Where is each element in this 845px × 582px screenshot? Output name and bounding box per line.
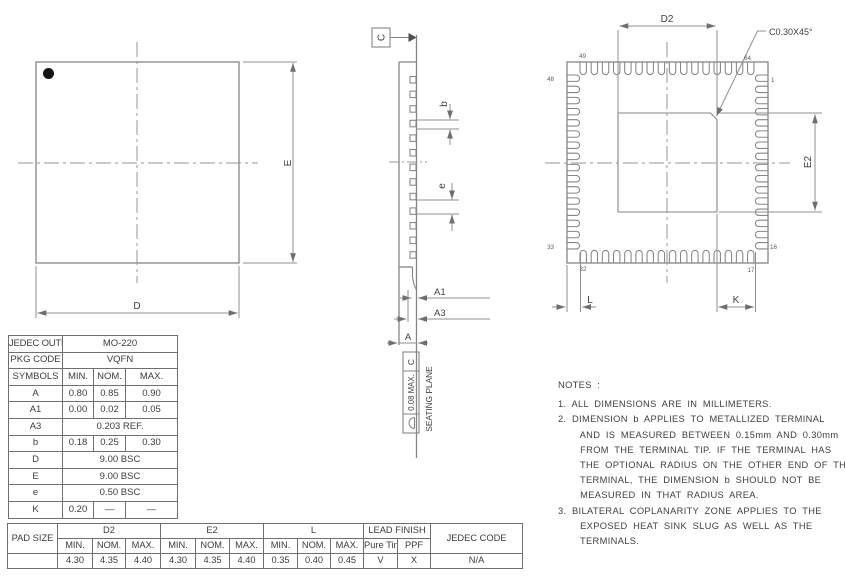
flatness-symbol-icon [409, 418, 414, 429]
top-view: E D [18, 42, 297, 318]
notes-line: 3. BILATERAL COPLANARITY ZONE APPLIES TO… [558, 504, 845, 519]
spec-span-value: 0.50 BSC [63, 485, 178, 502]
pad-sub-header: MIN. [161, 538, 196, 553]
pad-value: V [364, 553, 398, 568]
ppf-header: PPF [398, 538, 431, 553]
pin-49-label: 49 [579, 53, 586, 60]
spec-label-pkg-code: PKG CODE [9, 352, 63, 369]
pad-value: 0.35 [264, 553, 298, 568]
table-row: A3 0.203 REF. [9, 418, 178, 435]
bottom-view: D2 E2 C0.30X45° L K 49 64 48 1 33 16 32 … [545, 14, 822, 312]
dim-label-a: A [405, 332, 412, 343]
spec-min: 0.80 [63, 385, 94, 402]
dim-label-a3: A3 [434, 308, 446, 319]
flatness-datum-label: C [406, 359, 416, 365]
dim-label-d: D [133, 301, 140, 312]
spec-table: JEDEC OUTLINE MO-220 PKG CODE VQFN SYMBO… [8, 335, 178, 519]
spec-value-pkg-code: VQFN [63, 352, 178, 369]
spec-symbol: e [9, 485, 63, 502]
notes-line: FROM THE TERMINAL TIP. IF THE TERMINAL H… [558, 443, 845, 458]
spec-max: 0.90 [126, 385, 178, 402]
spec-value-jedec-outline: MO-220 [63, 336, 178, 353]
spec-symbol: K [9, 501, 63, 518]
table-row: PKG CODE VQFN [9, 352, 178, 369]
notes-title: NOTES : [558, 378, 845, 393]
pad-value: 4.30 [58, 553, 93, 568]
side-view-terminals [410, 77, 416, 259]
pad-sub-header: MIN. [58, 538, 93, 553]
pad-sub-header: NOM. [93, 538, 126, 553]
notes-line: MEASURED IN THAT RADIUS AREA. [558, 488, 845, 503]
pad-sub-header: MAX. [126, 538, 161, 553]
notes-line: 1. ALL DIMENSIONS ARE IN MILLIMETERS. [558, 397, 845, 412]
pad-value: 4.30 [161, 553, 196, 568]
dimension-lines-top-view [36, 62, 297, 318]
table-row: A1 0.00 0.02 0.05 [9, 402, 178, 419]
spec-header-max: MAX. [126, 369, 178, 386]
spec-span-value: 0.203 REF. [63, 418, 178, 435]
pad-sub-header: MAX. [230, 538, 264, 553]
pin-16-label: 16 [770, 244, 777, 251]
pin1-marker-dot [43, 68, 54, 79]
datum-arrowhead [409, 33, 417, 42]
spec-symbol: A3 [9, 418, 63, 435]
datum-c-label: C [377, 34, 388, 41]
dim-label-a1: A1 [434, 287, 446, 298]
spec-symbol: A [9, 385, 63, 402]
pin-1-label: 1 [771, 77, 775, 84]
chamfer-callout-label: C0.30X45° [769, 27, 813, 37]
spec-max: — [126, 501, 178, 518]
notes-line: EXPOSED HEAT SINK SLUG AS WELL AS THE [558, 519, 845, 534]
dim-label-e: E [283, 159, 294, 166]
table-row: A 0.80 0.85 0.90 [9, 385, 178, 402]
table-row: D 9.00 BSC [9, 452, 178, 469]
pad-e2-header: E2 [161, 524, 264, 539]
spec-nom: 0.85 [94, 385, 126, 402]
pad-value: 4.40 [126, 553, 161, 568]
table-row: 4.30 4.35 4.40 4.30 4.35 4.40 0.35 0.40 … [8, 553, 523, 568]
jedec-code-header: JEDEC CODE [431, 524, 523, 554]
spec-max: 0.30 [126, 435, 178, 452]
pad-sub-header: NOM. [298, 538, 331, 553]
pin-48-label: 48 [547, 76, 554, 83]
pad-value: 0.40 [298, 553, 331, 568]
spec-header-nom: NOM. [94, 369, 126, 386]
spec-label-jedec-outline: JEDEC OUTLINE [9, 336, 63, 353]
seating-plane-label: SEATING PLANE [424, 366, 434, 432]
table-row: E 9.00 BSC [9, 468, 178, 485]
pin-33-label: 33 [547, 244, 554, 251]
pad-sub-header: MIN. [264, 538, 298, 553]
spec-span-value: 9.00 BSC [63, 468, 178, 485]
table-row: JEDEC OUTLINE MO-220 [9, 336, 178, 353]
spec-span-value: 9.00 BSC [63, 452, 178, 469]
table-row: K 0.20 — — [9, 501, 178, 518]
spec-min: 0.18 [63, 435, 94, 452]
dim-label-d2: D2 [661, 14, 674, 25]
centerlines [18, 42, 258, 283]
spec-symbol: b [9, 435, 63, 452]
pad-sub-header: MAX. [331, 538, 364, 553]
dim-label-l: L [587, 295, 593, 306]
spec-min: 0.00 [63, 402, 94, 419]
notes-line: THE OPTIONAL RADIUS ON THE OTHER END OF … [558, 458, 845, 473]
spec-header-symbols: SYMBOLS [9, 369, 63, 386]
spec-symbol: A1 [9, 402, 63, 419]
lead-finish-header: LEAD FINISH [364, 524, 431, 539]
notes-line: AND IS MEASURED BETWEEN 0.15mm AND 0.30m… [558, 428, 845, 443]
notes-line: 2. DIMENSION b APPLIES TO METALLIZED TER… [558, 412, 845, 427]
table-row: SYMBOLS MIN. NOM. MAX. [9, 369, 178, 386]
pad-value: 4.35 [196, 553, 230, 568]
pad-l-header: L [264, 524, 364, 539]
spec-nom: — [94, 501, 126, 518]
notes-line: TERMINALS. [558, 534, 845, 549]
dim-label-k: K [733, 295, 740, 306]
flatness-tolerance-label: 0.08 MAX. [407, 374, 416, 410]
pad-value: X [398, 553, 431, 568]
pad-size-table: PAD SIZE D2 E2 L LEAD FINISH JEDEC CODE … [7, 523, 523, 569]
pad-value: 4.35 [93, 553, 126, 568]
dim-label-e2: E2 [803, 155, 814, 168]
table-row: PAD SIZE D2 E2 L LEAD FINISH JEDEC CODE [8, 524, 523, 539]
dim-label-b: b [439, 101, 450, 107]
spec-min: 0.20 [63, 501, 94, 518]
pad-value [8, 553, 58, 568]
spec-nom: 0.02 [94, 402, 126, 419]
spec-max: 0.05 [126, 402, 178, 419]
notes-section: NOTES : 1. ALL DIMENSIONS ARE IN MILLIME… [558, 378, 845, 549]
notes-line: TERMINAL, THE DIMENSION b SHOULD NOT BE [558, 473, 845, 488]
spec-header-min: MIN. [63, 369, 94, 386]
pad-sub-header: NOM. [196, 538, 230, 553]
side-view: C b e A1 A3 A C 0.08 MAX. SEATING PLANE [372, 28, 490, 458]
pad-size-header: PAD SIZE [8, 524, 58, 554]
pin-32-label: 32 [580, 266, 587, 273]
centerlines-bottom-view [545, 42, 790, 283]
table-row: e 0.50 BSC [9, 485, 178, 502]
dim-label-e-pitch: e [437, 183, 448, 189]
table-row: b 0.18 0.25 0.30 [9, 435, 178, 452]
spec-nom: 0.25 [94, 435, 126, 452]
package-outline-drawing: E D [0, 0, 845, 582]
spec-symbol: D [9, 452, 63, 469]
pad-value: N/A [431, 553, 523, 568]
pin-64-label: 64 [744, 55, 751, 62]
pure-tin-header: Pure Tin [364, 538, 398, 553]
spec-symbol: E [9, 468, 63, 485]
pin-17-label: 17 [748, 267, 755, 274]
pad-value: 4.40 [230, 553, 264, 568]
pad-d2-header: D2 [58, 524, 161, 539]
pad-value: 0.45 [331, 553, 364, 568]
